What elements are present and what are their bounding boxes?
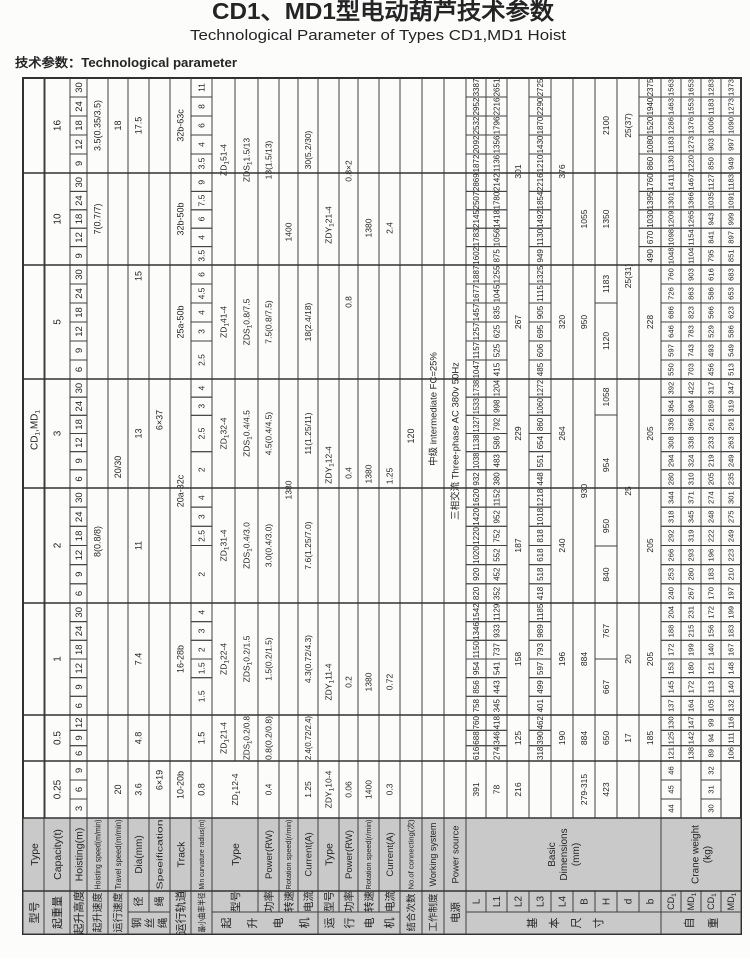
svg-text:249: 249 [727, 454, 736, 467]
svg-text:Dia(mm): Dia(mm) [134, 835, 145, 873]
svg-text:274: 274 [707, 491, 716, 504]
svg-text:266: 266 [667, 549, 676, 562]
svg-text:1150: 1150 [472, 641, 481, 659]
svg-text:884: 884 [579, 731, 589, 745]
svg-text:903: 903 [687, 268, 696, 281]
svg-text:Hoisting(m): Hoisting(m) [73, 828, 85, 882]
svg-text:1090: 1090 [727, 117, 736, 134]
svg-text:841: 841 [707, 231, 716, 244]
svg-text:952: 952 [492, 510, 501, 524]
svg-text:490: 490 [646, 249, 655, 263]
svg-text:190: 190 [557, 731, 567, 745]
svg-text:930: 930 [579, 484, 589, 498]
svg-text:301: 301 [727, 491, 736, 504]
svg-text:8: 8 [197, 104, 207, 109]
svg-text:456: 456 [707, 363, 716, 376]
svg-text:1366: 1366 [687, 192, 696, 209]
svg-text:7(0.7/7): 7(0.7/7) [93, 203, 103, 234]
svg-text:2.4: 2.4 [385, 222, 395, 234]
svg-text:120: 120 [406, 428, 416, 443]
svg-text:Power source: Power source [450, 825, 461, 883]
svg-text:1272: 1272 [536, 379, 545, 396]
svg-text:549: 549 [727, 344, 736, 357]
svg-text:30: 30 [74, 177, 85, 188]
svg-text:0.4: 0.4 [344, 467, 354, 479]
svg-text:686: 686 [667, 306, 676, 319]
svg-text:205: 205 [645, 426, 655, 440]
svg-text:运: 运 [323, 918, 336, 929]
svg-text:1327: 1327 [472, 416, 481, 433]
svg-text:12: 12 [74, 717, 85, 728]
svg-text:222: 222 [707, 530, 716, 543]
svg-text:183: 183 [727, 625, 736, 638]
svg-text:840: 840 [601, 567, 611, 581]
svg-text:140: 140 [707, 643, 716, 656]
svg-text:6: 6 [74, 751, 85, 756]
svg-text:尺: 尺 [571, 918, 583, 929]
svg-text:345: 345 [492, 698, 501, 712]
svg-text:1209: 1209 [667, 211, 676, 228]
svg-text:850: 850 [707, 157, 716, 170]
svg-text:586: 586 [727, 325, 736, 338]
svg-text:394: 394 [687, 400, 696, 413]
svg-text:485: 485 [536, 362, 545, 376]
svg-text:318: 318 [667, 510, 676, 523]
svg-text:172: 172 [707, 606, 716, 619]
svg-text:997: 997 [727, 138, 736, 151]
svg-text:7.5: 7.5 [197, 194, 207, 206]
svg-text:3.5: 3.5 [197, 157, 207, 169]
svg-text:4: 4 [197, 385, 207, 390]
svg-text:Type: Type [323, 843, 335, 866]
svg-text:586: 586 [707, 287, 716, 300]
svg-text:1346: 1346 [472, 622, 481, 640]
svg-text:338: 338 [687, 436, 696, 449]
svg-text:646: 646 [667, 325, 676, 338]
svg-text:7.6(1.25/7.0): 7.6(1.25/7.0) [303, 521, 313, 569]
svg-text:347: 347 [727, 382, 736, 395]
svg-text:CD1、MD1型电动葫芦技术参数: CD1、MD1型电动葫芦技术参数 [212, 0, 555, 24]
svg-text:Power(RW): Power(RW) [264, 830, 275, 879]
svg-text:4.3(0.72/4.3): 4.3(0.72/4.3) [303, 635, 313, 683]
svg-text:4: 4 [197, 235, 207, 240]
svg-text:机: 机 [382, 918, 396, 929]
svg-text:2290: 2290 [536, 97, 545, 115]
svg-text:1055: 1055 [579, 209, 589, 228]
svg-text:11(1.25/11): 11(1.25/11) [303, 412, 313, 454]
svg-text:1: 1 [53, 656, 64, 662]
svg-text:0.5: 0.5 [53, 731, 64, 745]
svg-text:2507: 2507 [472, 191, 481, 209]
svg-text:187: 187 [513, 538, 523, 552]
svg-text:0.3: 0.3 [385, 783, 395, 795]
svg-text:688: 688 [472, 731, 481, 745]
svg-text:294: 294 [667, 454, 676, 467]
svg-text:783: 783 [687, 325, 696, 338]
svg-text:89: 89 [707, 749, 716, 757]
svg-text:起升高度: 起升高度 [72, 891, 86, 935]
svg-text:6: 6 [74, 591, 85, 596]
svg-text:199: 199 [727, 606, 736, 619]
svg-text:0.4: 0.4 [264, 783, 274, 795]
svg-text:1373: 1373 [727, 79, 736, 96]
svg-text:2532: 2532 [472, 116, 481, 134]
svg-text:205: 205 [645, 538, 655, 552]
svg-text:392: 392 [667, 382, 676, 395]
svg-text:1183: 1183 [601, 275, 611, 294]
svg-text:径: 径 [132, 897, 145, 907]
svg-text:228: 228 [645, 315, 655, 329]
svg-text:153: 153 [667, 662, 676, 675]
svg-text:1218: 1218 [536, 488, 545, 506]
svg-text:167: 167 [727, 643, 736, 656]
svg-text:954: 954 [472, 661, 481, 675]
svg-text:229: 229 [513, 426, 523, 440]
svg-text:950: 950 [601, 519, 611, 533]
svg-text:860: 860 [536, 417, 545, 431]
svg-text:46: 46 [667, 766, 676, 774]
svg-text:13: 13 [134, 428, 144, 438]
svg-text:3: 3 [53, 430, 64, 436]
svg-text:518: 518 [536, 567, 545, 581]
svg-text:280: 280 [667, 473, 676, 486]
svg-text:4: 4 [197, 142, 207, 147]
svg-text:9: 9 [74, 253, 85, 258]
svg-text:954: 954 [601, 458, 611, 472]
svg-text:本: 本 [547, 918, 561, 929]
svg-text:376: 376 [557, 164, 567, 178]
svg-text:6×19: 6×19 [155, 770, 165, 790]
svg-text:1127: 1127 [707, 174, 716, 190]
svg-text:597: 597 [667, 344, 676, 357]
svg-text:30: 30 [74, 492, 85, 503]
svg-text:204: 204 [667, 606, 676, 619]
svg-text:905: 905 [536, 305, 545, 319]
svg-text:231: 231 [687, 606, 696, 619]
svg-text:215: 215 [687, 625, 696, 638]
svg-text:11: 11 [134, 541, 144, 550]
svg-text:1411: 1411 [667, 174, 676, 190]
svg-text:9: 9 [74, 735, 85, 740]
svg-text:6: 6 [74, 476, 85, 481]
svg-text:18: 18 [74, 419, 85, 430]
svg-text:0.8(0.2/0.8): 0.8(0.2/0.8) [264, 716, 274, 760]
svg-text:499: 499 [536, 680, 545, 694]
svg-text:216: 216 [513, 782, 523, 796]
svg-text:737: 737 [492, 642, 501, 656]
svg-text:17: 17 [623, 733, 633, 743]
svg-text:运行速度: 运行速度 [112, 893, 125, 933]
svg-text:18: 18 [74, 307, 85, 318]
svg-text:1872: 1872 [472, 154, 481, 172]
svg-text:寸: 寸 [591, 918, 605, 929]
svg-text:1018: 1018 [536, 507, 545, 525]
svg-text:0.2: 0.2 [344, 676, 354, 688]
svg-text:1553: 1553 [687, 98, 696, 115]
svg-text:932: 932 [472, 472, 481, 486]
svg-text:197: 197 [727, 587, 736, 600]
svg-text:667: 667 [601, 680, 611, 694]
svg-text:1185: 1185 [536, 603, 545, 621]
svg-text:156: 156 [707, 625, 716, 638]
svg-text:18: 18 [113, 120, 123, 130]
svg-text:743: 743 [687, 344, 696, 357]
svg-text:292: 292 [667, 530, 676, 543]
svg-text:78: 78 [492, 785, 502, 795]
svg-text:170: 170 [707, 587, 716, 600]
svg-text:20/30: 20/30 [113, 456, 123, 479]
svg-text:616: 616 [707, 268, 716, 281]
svg-text:1035: 1035 [707, 192, 716, 209]
svg-text:10-20b: 10-20b [176, 771, 186, 799]
svg-text:1286: 1286 [667, 117, 676, 134]
svg-text:2142: 2142 [492, 173, 501, 191]
svg-text:989: 989 [536, 624, 545, 638]
svg-text:2: 2 [197, 572, 207, 577]
svg-text:1098: 1098 [667, 229, 676, 246]
svg-text:999: 999 [727, 213, 736, 226]
svg-text:No.of connecting(次): No.of connecting(次) [407, 820, 416, 890]
svg-text:760: 760 [667, 268, 676, 281]
svg-text:1380: 1380 [364, 218, 374, 237]
svg-text:d: d [624, 899, 635, 905]
svg-text:233: 233 [707, 436, 716, 449]
svg-text:401: 401 [536, 698, 545, 712]
svg-text:18: 18 [74, 531, 85, 542]
svg-text:18(2.4/18): 18(2.4/18) [303, 302, 313, 341]
svg-text:中级 intermediate FC=25%: 中级 intermediate FC=25% [427, 352, 439, 466]
svg-text:205: 205 [707, 473, 716, 486]
svg-text:606: 606 [536, 343, 545, 357]
svg-text:823: 823 [687, 306, 696, 319]
svg-text:6: 6 [197, 216, 207, 221]
svg-text:319: 319 [727, 400, 736, 413]
svg-text:1380: 1380 [364, 464, 374, 483]
svg-text:3: 3 [197, 628, 207, 633]
svg-text:130: 130 [667, 716, 676, 729]
svg-text:1350: 1350 [601, 209, 611, 228]
svg-text:248: 248 [707, 510, 716, 523]
svg-text:24: 24 [74, 401, 85, 412]
svg-text:552: 552 [492, 548, 501, 562]
svg-text:L: L [472, 898, 483, 904]
svg-text:279-315: 279-315 [579, 774, 589, 805]
svg-text:30: 30 [74, 82, 85, 93]
svg-text:2.4(0.72/2.4): 2.4(0.72/2.4) [303, 716, 313, 760]
svg-text:6: 6 [74, 367, 85, 372]
svg-text:重: 重 [706, 918, 720, 929]
svg-text:415: 415 [492, 362, 501, 376]
svg-text:升: 升 [246, 918, 259, 929]
svg-text:1418: 1418 [492, 210, 501, 228]
svg-text:10: 10 [53, 213, 64, 225]
svg-text:1157: 1157 [472, 341, 481, 359]
svg-text:132: 132 [727, 699, 736, 712]
svg-text:三相交流 Three-phase AC 380v 50Hz: 三相交流 Three-phase AC 380v 50Hz [449, 362, 461, 520]
svg-text:9: 9 [74, 348, 85, 353]
svg-text:1325: 1325 [536, 265, 545, 283]
svg-text:1620: 1620 [472, 488, 481, 506]
svg-text:443: 443 [492, 680, 501, 694]
svg-text:793: 793 [536, 642, 545, 656]
svg-text:113: 113 [707, 681, 716, 693]
svg-text:943: 943 [707, 213, 716, 226]
svg-text:695: 695 [536, 324, 545, 338]
svg-text:2092: 2092 [472, 135, 481, 153]
svg-text:352: 352 [492, 586, 501, 600]
svg-text:366: 366 [687, 418, 696, 431]
svg-text:1257: 1257 [472, 322, 481, 340]
svg-text:24: 24 [74, 512, 85, 523]
svg-text:1058: 1058 [601, 387, 611, 406]
svg-text:12: 12 [74, 437, 85, 448]
svg-text:1129: 1129 [492, 603, 501, 621]
svg-text:机: 机 [297, 918, 311, 929]
svg-text:462: 462 [536, 715, 545, 729]
svg-text:2.5: 2.5 [197, 530, 207, 542]
svg-text:180: 180 [687, 662, 696, 675]
svg-text:6: 6 [74, 787, 85, 792]
svg-text:253: 253 [667, 568, 676, 581]
svg-text:12: 12 [74, 326, 85, 337]
svg-text:功率: 功率 [342, 891, 355, 912]
svg-text:Dimensions: Dimensions [559, 828, 570, 880]
svg-text:483: 483 [492, 454, 501, 468]
svg-text:320: 320 [557, 315, 567, 329]
svg-text:158: 158 [513, 652, 523, 666]
svg-text:550: 550 [667, 363, 676, 376]
svg-text:1677: 1677 [472, 284, 481, 302]
svg-text:818: 818 [536, 529, 545, 543]
svg-text:32b-63c: 32b-63c [176, 109, 186, 142]
svg-text:30: 30 [74, 383, 85, 394]
svg-text:6×37: 6×37 [155, 410, 165, 430]
svg-text:654: 654 [536, 435, 545, 449]
svg-text:2216: 2216 [536, 173, 545, 191]
svg-text:142: 142 [687, 732, 696, 745]
svg-text:147: 147 [687, 716, 696, 729]
svg-text:2375: 2375 [646, 78, 655, 96]
svg-text:2: 2 [53, 542, 64, 548]
svg-text:1006: 1006 [707, 117, 716, 134]
svg-text:164: 164 [687, 699, 696, 712]
svg-text:Min curvature radius(m): Min curvature radius(m) [197, 820, 206, 890]
svg-text:1463: 1463 [667, 98, 676, 115]
svg-text:308: 308 [667, 436, 676, 449]
svg-text:Capacity(t): Capacity(t) [52, 829, 64, 880]
svg-text:20: 20 [113, 784, 123, 794]
svg-text:9: 9 [74, 161, 85, 166]
svg-text:b: b [646, 898, 657, 904]
svg-text:851: 851 [727, 249, 736, 262]
svg-text:30: 30 [74, 269, 85, 280]
svg-text:7.4: 7.4 [134, 653, 144, 666]
svg-text:345: 345 [687, 510, 696, 523]
svg-text:758: 758 [472, 698, 481, 712]
svg-text:L4: L4 [558, 896, 569, 908]
svg-text:390: 390 [536, 731, 545, 745]
svg-text:9: 9 [74, 572, 85, 577]
svg-text:L2: L2 [514, 896, 525, 908]
svg-text:24: 24 [74, 101, 85, 112]
svg-text:Speeification: Speeification [156, 819, 165, 890]
svg-text:310: 310 [687, 473, 696, 486]
svg-text:31: 31 [707, 785, 716, 793]
svg-text:Rotation speed(r/min): Rotation speed(r/min) [364, 820, 373, 890]
svg-text:760: 760 [472, 715, 481, 729]
svg-text:185: 185 [645, 731, 655, 745]
svg-text:1870: 1870 [536, 116, 545, 134]
svg-text:16: 16 [53, 120, 64, 132]
svg-text:1.25: 1.25 [303, 781, 313, 798]
svg-text:8(0.8/8): 8(0.8/8) [93, 526, 103, 557]
svg-text:1783: 1783 [472, 228, 481, 246]
svg-text:转速: 转速 [282, 891, 295, 912]
svg-text:30: 30 [707, 804, 716, 812]
svg-text:CD1,MD1: CD1,MD1 [30, 410, 42, 450]
svg-text:1136: 1136 [492, 154, 501, 172]
svg-text:94: 94 [707, 734, 716, 742]
svg-text:2869: 2869 [472, 173, 481, 191]
svg-text:Power(RW): Power(RW) [344, 830, 355, 879]
svg-text:结合次数: 结合次数 [405, 893, 417, 932]
svg-text:9: 9 [74, 768, 85, 773]
svg-text:3: 3 [197, 514, 207, 519]
svg-text:12: 12 [74, 663, 85, 674]
svg-text:752: 752 [492, 529, 501, 543]
svg-text:3.0(0.4/3.0): 3.0(0.4/3.0) [264, 524, 274, 568]
svg-text:技术参数：Technological parameter: 技术参数：Technological parameter [15, 55, 237, 70]
svg-text:9: 9 [74, 458, 85, 463]
svg-text:2: 2 [197, 467, 207, 472]
svg-text:L1: L1 [492, 896, 503, 908]
svg-text:597: 597 [536, 661, 545, 675]
svg-text:行: 行 [343, 918, 356, 929]
svg-text:210: 210 [727, 568, 736, 581]
svg-text:17.5: 17.5 [134, 117, 144, 135]
svg-text:418: 418 [492, 715, 501, 729]
svg-text:25(37): 25(37) [623, 113, 633, 138]
svg-text:9: 9 [197, 180, 207, 185]
svg-text:起重量: 起重量 [50, 896, 64, 929]
svg-text:7.5(0.8/7.5): 7.5(0.8/7.5) [264, 300, 274, 344]
svg-text:Current(A): Current(A) [303, 832, 314, 876]
svg-text:618: 618 [536, 548, 545, 562]
svg-text:6: 6 [197, 123, 207, 128]
svg-text:24: 24 [74, 288, 85, 299]
svg-text:1520: 1520 [646, 116, 655, 134]
svg-text:767: 767 [601, 624, 611, 638]
svg-text:绳: 绳 [156, 917, 169, 928]
svg-text:263: 263 [727, 436, 736, 449]
svg-text:196: 196 [707, 549, 716, 562]
svg-text:最小曲率半径: 最小曲率半径 [196, 893, 206, 933]
svg-text:726: 726 [667, 287, 676, 300]
svg-text:391: 391 [471, 782, 481, 796]
svg-text:1120: 1120 [601, 332, 611, 351]
svg-text:1376: 1376 [687, 117, 696, 134]
svg-text:44: 44 [667, 804, 676, 812]
svg-text:绳: 绳 [153, 897, 166, 907]
svg-text:1.5: 1.5 [197, 732, 207, 745]
svg-text:301: 301 [513, 164, 523, 178]
svg-text:1020: 1020 [472, 546, 481, 564]
svg-text:1045: 1045 [492, 284, 501, 302]
svg-text:344: 344 [667, 491, 676, 504]
svg-text:1204: 1204 [492, 379, 501, 396]
svg-text:196: 196 [557, 652, 567, 666]
svg-text:1048: 1048 [667, 247, 676, 264]
